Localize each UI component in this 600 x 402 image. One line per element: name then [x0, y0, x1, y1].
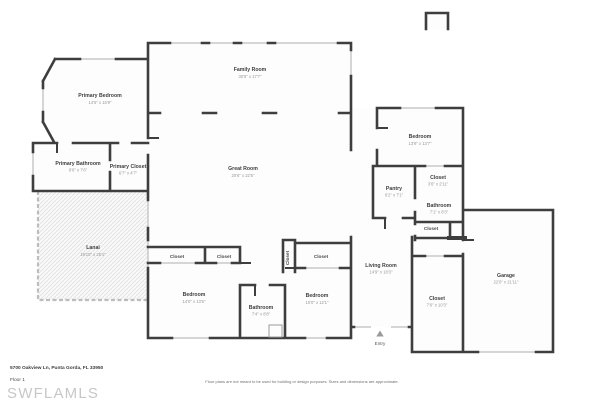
room-dims-primary-closet: 6'7" x 4'7" — [119, 171, 138, 176]
room-label-great-room: Great Room — [228, 166, 258, 172]
room-dims-primary-bathroom: 8'6" x 7'6" — [69, 168, 88, 173]
room-dims-great-room: 20'6" x 22'5" — [232, 173, 255, 178]
entry-arrow-icon — [376, 331, 383, 337]
room-label-bedroom-top-right: Bedroom — [409, 134, 432, 140]
room-dims-closet-garage: 7'6" x 10'3" — [427, 303, 448, 308]
floor-plan-page: Family Room 30'8" x 17'7" Primary Bedroo… — [0, 0, 600, 402]
room-dims-bedroom-bottom-left: 14'0" x 13'5" — [183, 299, 206, 304]
room-dims-closet-top-right: 3'6" x 2'11" — [428, 182, 449, 187]
room-label-bathroom-right: Bathroom — [427, 203, 452, 209]
room-dims-primary-bedroom: 14'5" x 15'9" — [89, 100, 112, 105]
room-label-closet-narrow: Closet — [285, 250, 290, 265]
room-label-lanai: Lanai — [86, 245, 100, 251]
room-label-closet-garage: Closet — [429, 296, 445, 302]
room-label-entry: Entry — [375, 341, 386, 346]
watermark-logo: SWFLAMLS — [7, 385, 99, 402]
room-label-closet-right: Closet — [424, 226, 439, 231]
floor-label: Floor 1 — [10, 377, 25, 383]
room-label-closet-2: Closet — [217, 254, 232, 259]
room-dims-family-room: 30'8" x 17'7" — [239, 74, 262, 79]
room-dims-bathroom-bottom: 7'4" x 8'8" — [252, 312, 271, 317]
disclaimer-text: Floor plans are not meant to be used for… — [205, 379, 398, 384]
room-dims-lanai: 19'10" x 25'1" — [80, 252, 106, 257]
address-text: 5700 Oakview Ln, Punta Gorda, FL 33950 — [10, 365, 104, 371]
room-label-bedroom-bottom-center: Bedroom — [306, 293, 329, 299]
footer: 5700 Oakview Ln, Punta Gorda, FL 33950 F… — [7, 365, 399, 402]
room-label-living-room: Living Room — [365, 263, 397, 269]
room-label-closet-1: Closet — [170, 254, 185, 259]
room-label-garage: Garage — [497, 273, 515, 279]
room-dims-living-room: 14'9" x 18'3" — [370, 270, 393, 275]
room-dims-bedroom-top-right: 13'9" x 13'7" — [409, 141, 432, 146]
room-label-bathroom-bottom: Bathroom — [249, 305, 274, 311]
room-label-bedroom-bottom-left: Bedroom — [183, 292, 206, 298]
room-label-pantry: Pantry — [386, 186, 402, 192]
room-label-family-room: Family Room — [234, 67, 267, 73]
floor-plan-svg: Family Room 30'8" x 17'7" Primary Bedroo… — [0, 0, 600, 402]
room-dims-garage: 22'0" x 21'11" — [494, 280, 519, 285]
room-label-primary-bedroom: Primary Bedroom — [78, 93, 122, 99]
room-dims-pantry: 6'2" x 7'1" — [385, 193, 404, 198]
room-dims-bathroom-right: 7'1" x 8'3" — [430, 210, 449, 215]
room-label-primary-bathroom: Primary Bathroom — [55, 161, 101, 167]
room-label-closet-bedroom2: Closet — [314, 254, 329, 259]
room-dims-bedroom-bottom-center: 10'0" x 12'1" — [306, 300, 329, 305]
room-label-primary-closet: Primary Closet — [110, 164, 147, 170]
room-label-closet-top-right: Closet — [430, 175, 446, 181]
